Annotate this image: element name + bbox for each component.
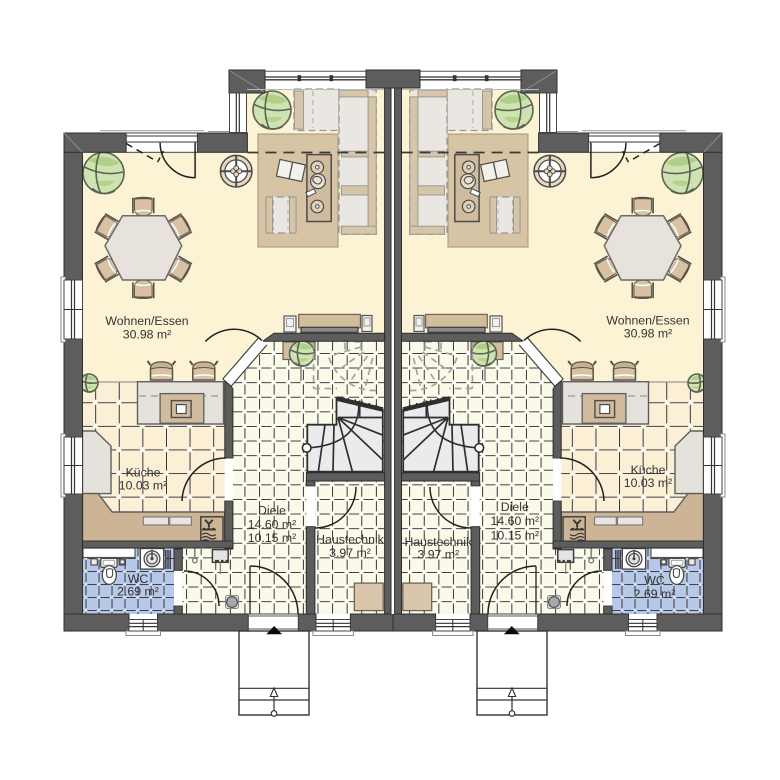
svg-text:10.03 m²: 10.03 m² bbox=[119, 479, 168, 493]
svg-text:2.69 m²: 2.69 m² bbox=[634, 587, 676, 601]
svg-text:10.15 m²: 10.15 m² bbox=[248, 531, 297, 545]
svg-text:Wohnen/Essen: Wohnen/Essen bbox=[606, 314, 689, 328]
svg-text:30.98 m²: 30.98 m² bbox=[123, 328, 172, 342]
svg-text:14.60 m²: 14.60 m² bbox=[248, 518, 297, 532]
svg-text:10.15 m²: 10.15 m² bbox=[491, 529, 540, 543]
svg-text:WC: WC bbox=[644, 574, 665, 588]
svg-text:Haustechnik: Haustechnik bbox=[316, 533, 385, 547]
svg-text:3.97 m²: 3.97 m² bbox=[417, 548, 459, 562]
svg-text:Küche: Küche bbox=[126, 466, 161, 480]
svg-text:14.60 m²: 14.60 m² bbox=[491, 514, 540, 528]
svg-text:Küche: Küche bbox=[631, 463, 666, 477]
svg-text:2.69 m²: 2.69 m² bbox=[117, 585, 159, 599]
svg-text:10.03 m²: 10.03 m² bbox=[624, 476, 673, 490]
svg-text:Diele: Diele bbox=[501, 500, 529, 514]
svg-text:Diele: Diele bbox=[258, 504, 286, 518]
svg-text:30.98 m²: 30.98 m² bbox=[624, 327, 673, 341]
svg-text:Wohnen/Essen: Wohnen/Essen bbox=[105, 314, 188, 328]
svg-text:3.97 m²: 3.97 m² bbox=[329, 546, 371, 560]
